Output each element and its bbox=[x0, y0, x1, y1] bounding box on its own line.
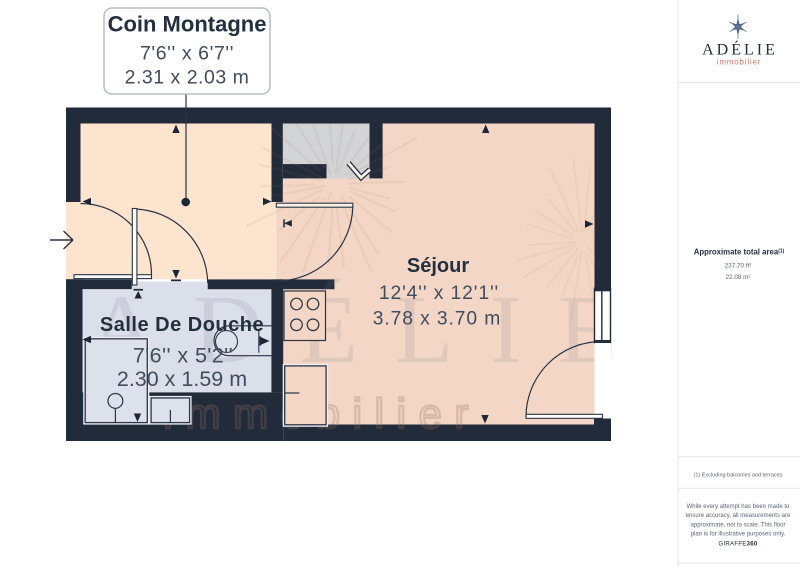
svg-text:ensure accuracy, all measureme: ensure accuracy, all measurements are bbox=[686, 513, 791, 519]
svg-text:Séjour: Séjour bbox=[407, 255, 469, 277]
svg-text:immobilier: immobilier bbox=[717, 58, 761, 67]
svg-text:7'6'' x 5'2'': 7'6'' x 5'2'' bbox=[133, 344, 233, 368]
svg-text:While every attempt has been m: While every attempt has been made to bbox=[687, 504, 790, 510]
svg-text:7'6'' x 6'7'': 7'6'' x 6'7'' bbox=[140, 43, 234, 65]
svg-text:2.30 x 1.59 m: 2.30 x 1.59 m bbox=[117, 367, 247, 391]
svg-text:(1) Excluding balconies and te: (1) Excluding balconies and terraces bbox=[694, 473, 783, 479]
svg-text:3.78 x 3.70 m: 3.78 x 3.70 m bbox=[373, 309, 502, 330]
svg-text:2.31 x 2.03 m: 2.31 x 2.03 m bbox=[125, 67, 250, 89]
svg-text:plan is for illustrative purpo: plan is for illustrative purposes only. bbox=[691, 532, 786, 538]
svg-text:22.08 m²: 22.08 m² bbox=[726, 274, 751, 281]
svg-text:12'4'' x 12'1'': 12'4'' x 12'1'' bbox=[379, 283, 499, 304]
svg-text:Approximate total area(1): Approximate total area(1) bbox=[694, 248, 785, 257]
svg-text:ADÉLIE: ADÉLIE bbox=[702, 40, 778, 59]
svg-text:GIRAFFE360: GIRAFFE360 bbox=[718, 542, 757, 548]
svg-text:approximate, not to scale. Thi: approximate, not to scale. This floor bbox=[691, 522, 786, 528]
svg-text:Salle De Douche: Salle De Douche bbox=[100, 314, 264, 336]
svg-text:237.70 ft²: 237.70 ft² bbox=[725, 263, 752, 270]
svg-text:Coin Montagne: Coin Montagne bbox=[108, 12, 267, 37]
